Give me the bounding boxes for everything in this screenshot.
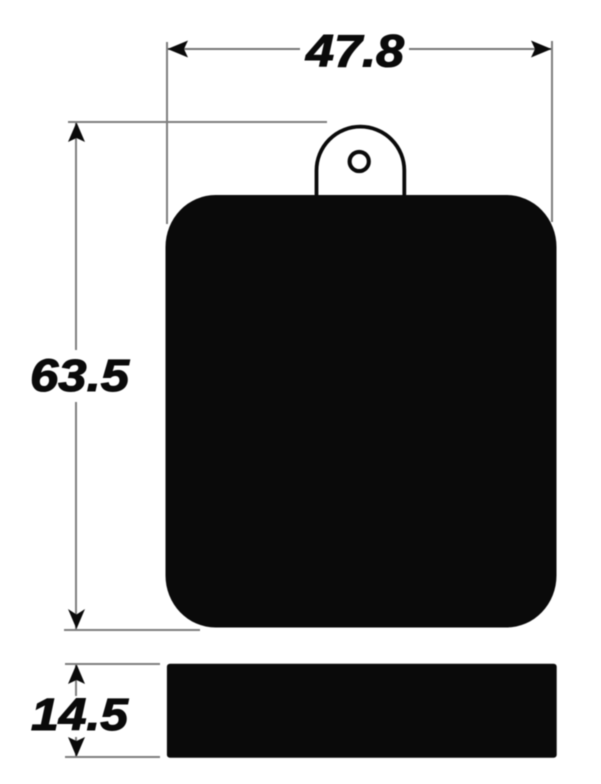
- svg-text:47.8: 47.8: [305, 26, 404, 77]
- svg-text:14.5: 14.5: [31, 689, 129, 740]
- svg-text:63.5: 63.5: [30, 350, 130, 401]
